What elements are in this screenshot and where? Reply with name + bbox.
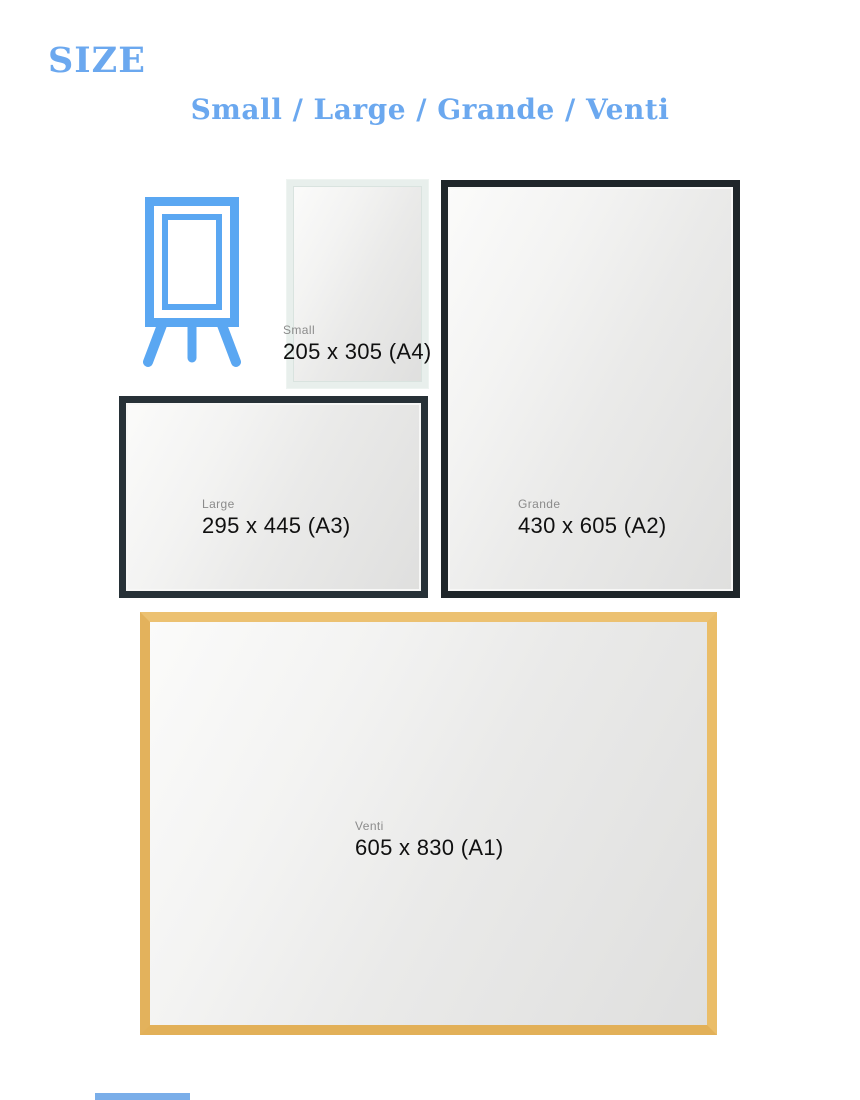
size-frame-large — [119, 396, 428, 598]
size-label-venti: Venti 605 x 830 (A1) — [355, 820, 504, 859]
easel-icon — [141, 192, 243, 368]
size-label-small: Small 205 x 305 (A4) — [283, 324, 432, 363]
size-label-large: Large 295 x 445 (A3) — [202, 498, 351, 537]
size-name-label: Large — [202, 498, 235, 510]
size-name-label: Venti — [355, 820, 384, 832]
size-label-grande: Grande 430 x 605 (A2) — [518, 498, 667, 537]
size-name-label: Grande — [518, 498, 560, 510]
size-dimensions-label: 605 x 830 (A1) — [355, 837, 504, 859]
size-dimensions-label: 430 x 605 (A2) — [518, 515, 667, 537]
size-name-label: Small — [283, 324, 315, 336]
size-guide-page: SIZE Small / Large / Grande / Venti Smal… — [0, 0, 860, 1100]
size-dimensions-label: 205 x 305 (A4) — [283, 341, 432, 363]
page-title: SIZE — [48, 40, 146, 81]
page-subtitle: Small / Large / Grande / Venti — [0, 93, 860, 126]
bottom-blue-bar — [95, 1093, 190, 1100]
size-dimensions-label: 295 x 445 (A3) — [202, 515, 351, 537]
